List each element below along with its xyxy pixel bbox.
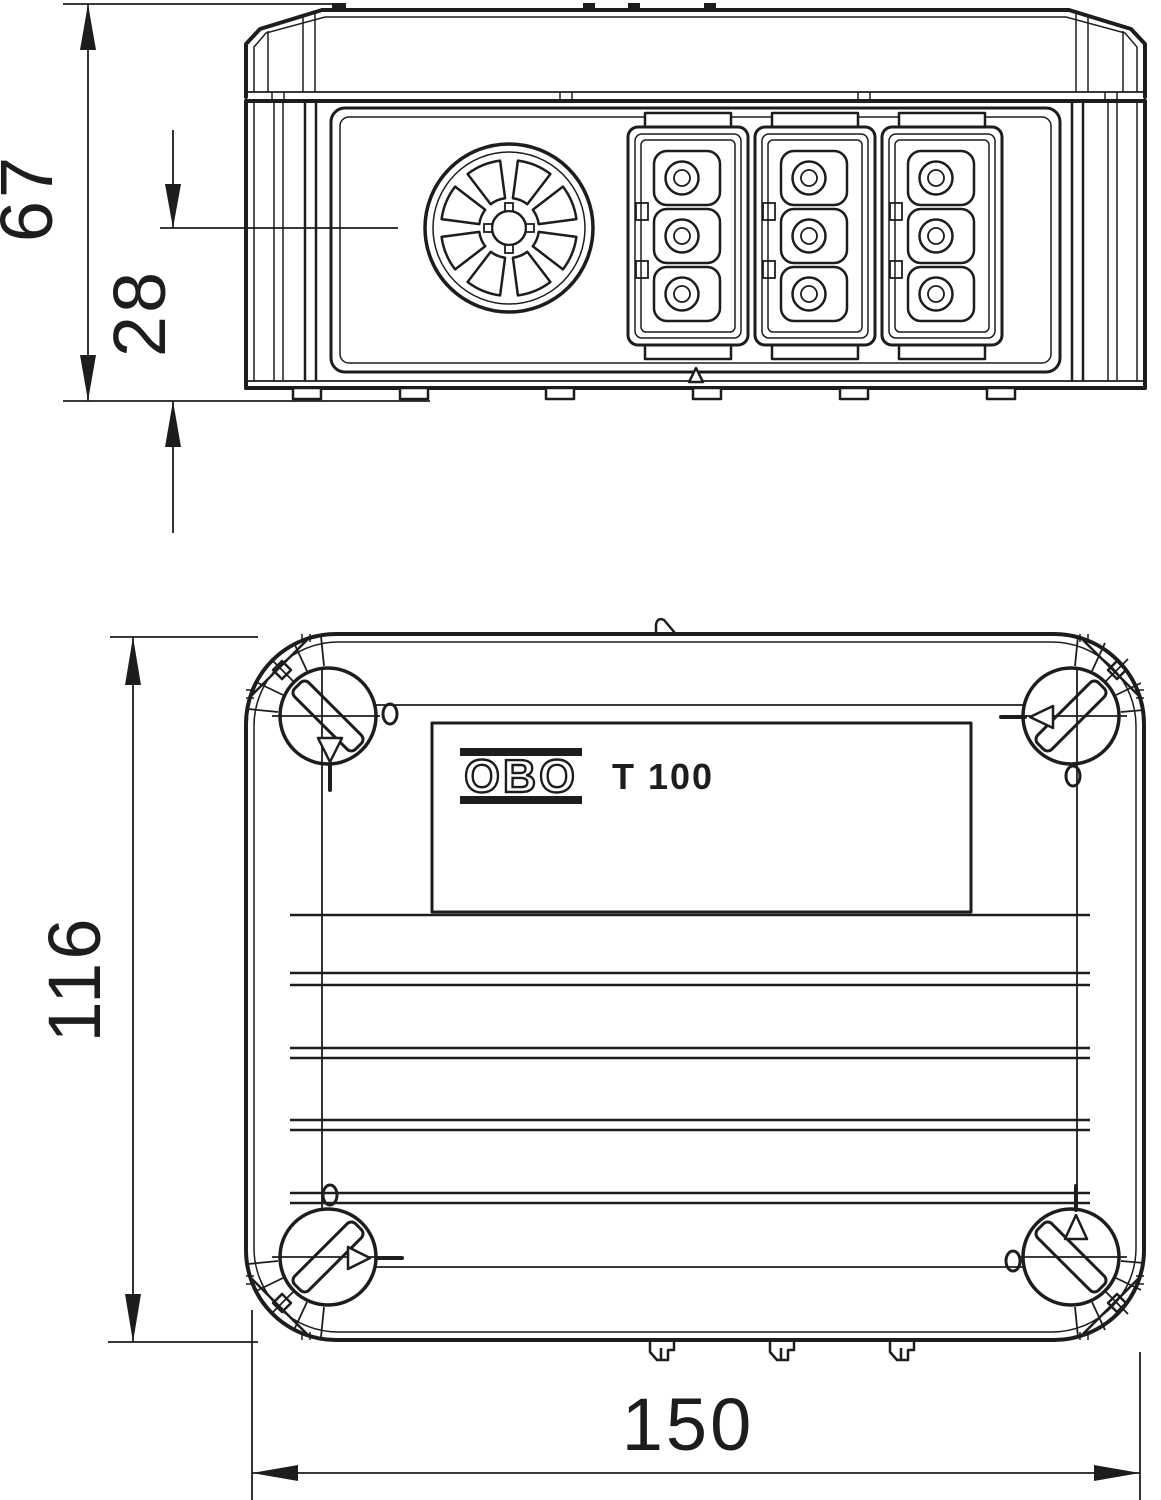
drawing-canvas: 67 28	[0, 0, 1161, 1500]
bottom-clips	[650, 1340, 914, 1360]
terminal-block-3	[882, 113, 1002, 359]
bottom-clip-mark	[689, 368, 703, 382]
corner-screw-top-right	[1001, 636, 1144, 786]
corner-screw-bottom-right	[1006, 1186, 1144, 1337]
model-label: T 100	[612, 756, 714, 797]
dim-116-label: 116	[33, 916, 116, 1043]
dim-28-label: 28	[98, 269, 181, 357]
terminal-block-1	[628, 113, 748, 359]
cable-knockout	[425, 144, 593, 312]
dim-150-label: 150	[622, 1383, 754, 1466]
lid-profile	[246, 3, 1145, 101]
dim-plan-depth: 116	[33, 637, 258, 1342]
technical-drawing: 67 28	[0, 0, 1161, 1500]
obo-logo: OBO	[460, 748, 582, 804]
plan-view: OBO T 100	[33, 619, 1144, 1500]
label-field: OBO T 100	[432, 723, 971, 912]
obo-logo-text: OBO	[464, 750, 578, 802]
side-view: 67 28	[0, 3, 1145, 533]
terminal-block-2	[755, 113, 875, 359]
edge-ticks	[246, 634, 1144, 1340]
dim-total-height: 67	[0, 4, 430, 401]
dim-67-label: 67	[0, 154, 68, 242]
